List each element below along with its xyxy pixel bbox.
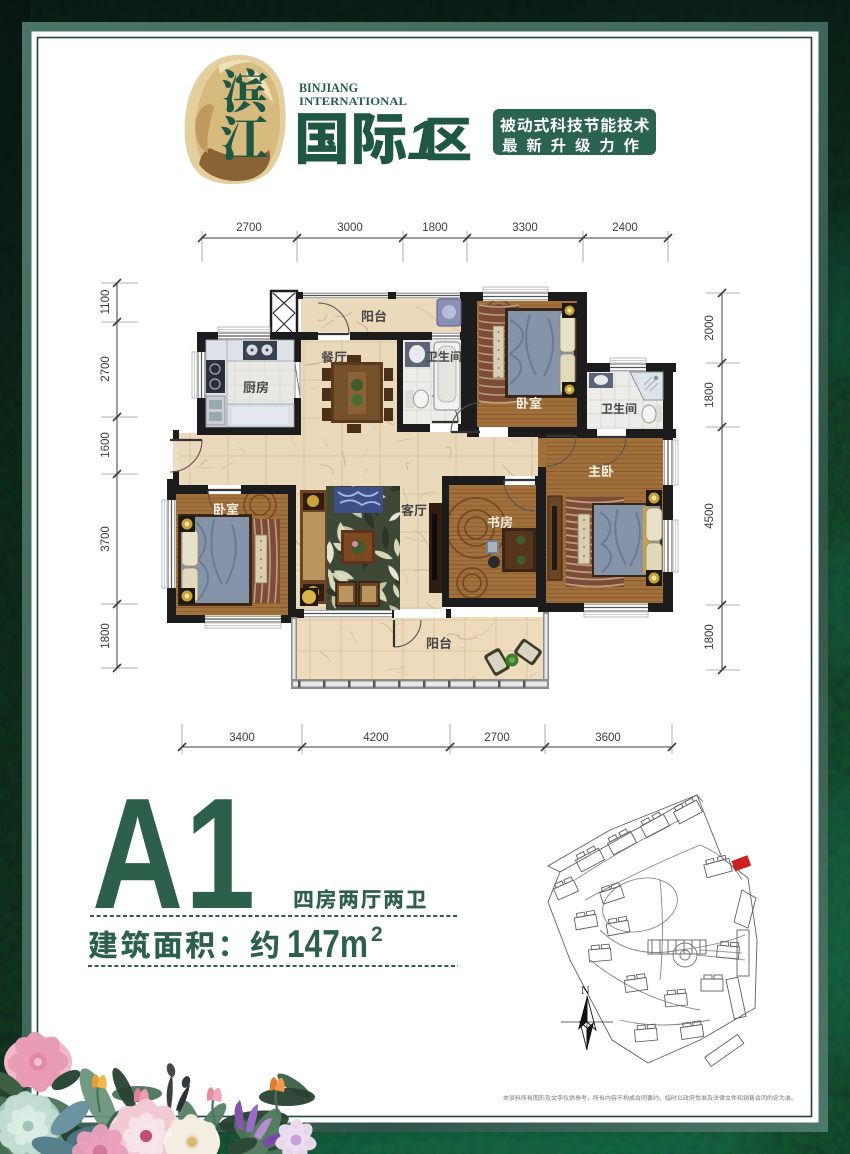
svg-text:3300: 3300 xyxy=(512,222,538,234)
svg-text:4200: 4200 xyxy=(363,732,389,744)
svg-text:3400: 3400 xyxy=(229,732,255,744)
svg-text:2700: 2700 xyxy=(484,732,510,744)
svg-text:1100: 1100 xyxy=(100,290,112,315)
svg-text:N: N xyxy=(581,983,590,997)
svg-text:2400: 2400 xyxy=(612,222,638,234)
svg-text:1800: 1800 xyxy=(704,382,716,408)
svg-text:1800: 1800 xyxy=(704,624,716,650)
svg-text:2700: 2700 xyxy=(100,356,112,382)
svg-text:1800: 1800 xyxy=(422,222,448,234)
svg-text:3000: 3000 xyxy=(337,222,363,234)
svg-text:2: 2 xyxy=(371,923,383,946)
svg-text:3700: 3700 xyxy=(100,526,112,552)
svg-text:4500: 4500 xyxy=(704,503,716,529)
svg-text:INTERNATIONAL: INTERNATIONAL xyxy=(299,96,407,108)
svg-text:2700: 2700 xyxy=(236,222,262,234)
svg-text:2000: 2000 xyxy=(704,315,716,341)
svg-text:1600: 1600 xyxy=(100,432,112,458)
svg-text:3600: 3600 xyxy=(595,732,621,744)
svg-text:147m: 147m xyxy=(287,923,368,966)
svg-text:BINJIANG: BINJIANG xyxy=(299,80,358,95)
svg-text:1800: 1800 xyxy=(100,623,112,649)
